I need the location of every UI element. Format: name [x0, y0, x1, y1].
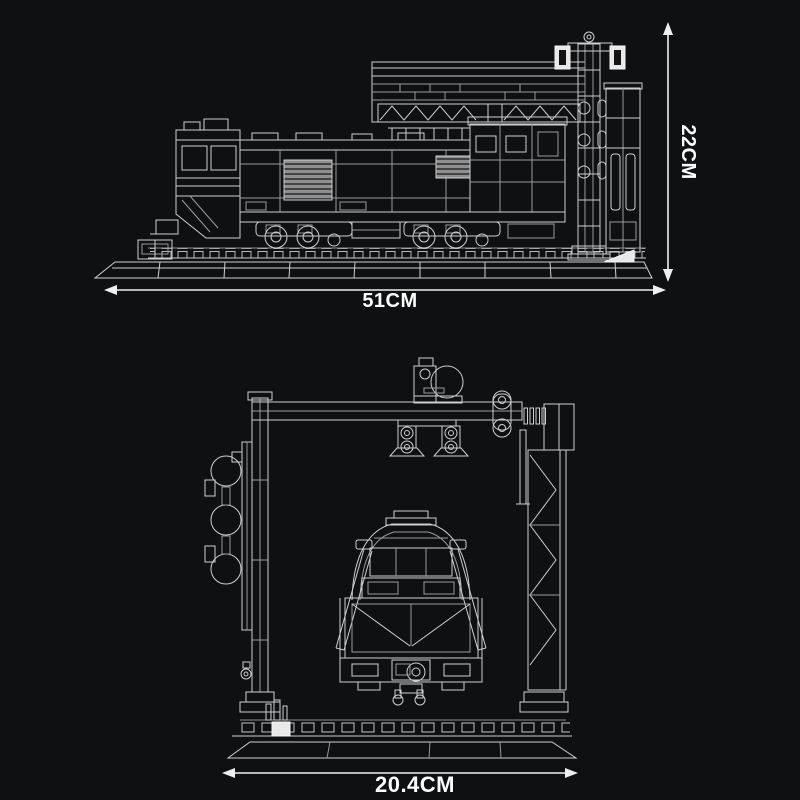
- front-locomotive: [336, 511, 486, 705]
- side-width-dimension-label: 51CM: [330, 290, 450, 312]
- side-height-dimension-label: 22CM: [675, 120, 701, 184]
- arrow-down-icon: [663, 269, 673, 282]
- front-spotlight: [414, 358, 463, 403]
- side-engine-tower: [604, 83, 642, 262]
- front-signal-mast: [205, 442, 252, 679]
- arrow-right-icon: [565, 768, 578, 778]
- front-signal-heads: [390, 420, 468, 456]
- arrow-left-icon: [104, 285, 117, 295]
- side-signal-lamp-boxes: [555, 46, 625, 69]
- dimension-line-22cm: [663, 22, 673, 282]
- front-roller-bracket: [493, 391, 511, 437]
- front-baseplate: [228, 700, 576, 758]
- arrow-left-icon: [222, 768, 235, 778]
- side-locomotive: [150, 117, 567, 248]
- arrow-up-icon: [663, 22, 673, 35]
- product-dimension-diagram: 51CM 22CM 20.4CM: [0, 0, 800, 800]
- front-view-drawing: [205, 358, 578, 778]
- side-view-drawing: [95, 22, 673, 295]
- side-gantry-bridge: [372, 62, 585, 122]
- front-width-dimension-label: 20.4CM: [345, 772, 485, 798]
- arrow-right-icon: [653, 285, 666, 295]
